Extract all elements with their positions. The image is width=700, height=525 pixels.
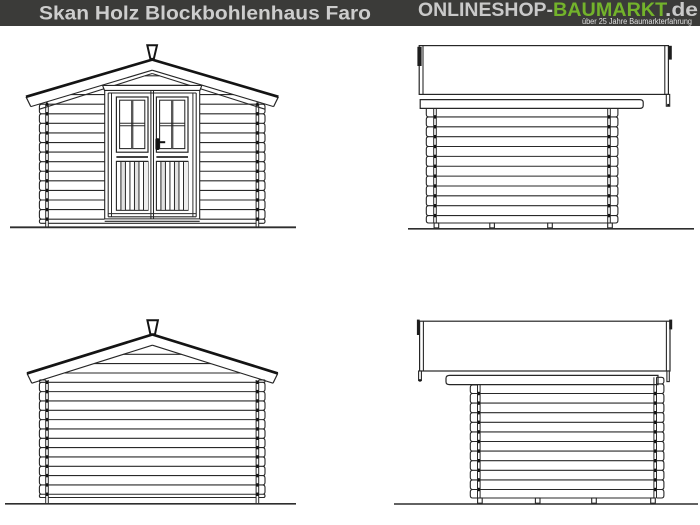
svg-text:Skan Holz Blockbohlenhaus Faro: Skan Holz Blockbohlenhaus Faro bbox=[39, 3, 371, 25]
svg-text:über 25 Jahre Baumarkterfahrun: über 25 Jahre Baumarkterfahrung bbox=[582, 17, 692, 26]
